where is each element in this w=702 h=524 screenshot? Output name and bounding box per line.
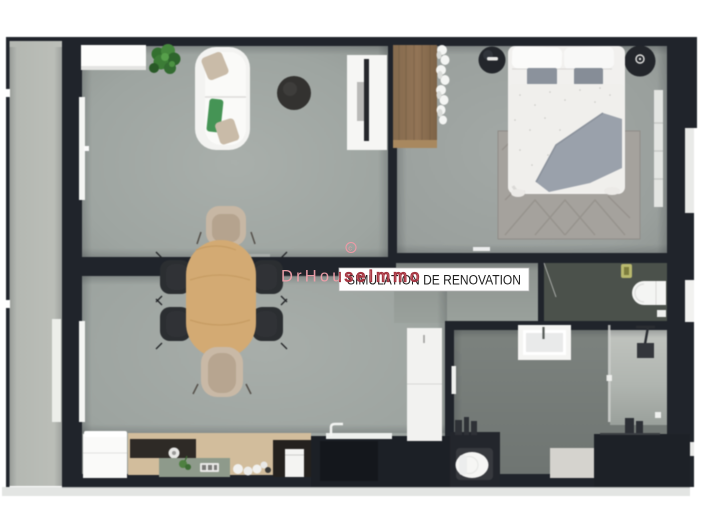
svg-text:c: c (348, 244, 352, 253)
